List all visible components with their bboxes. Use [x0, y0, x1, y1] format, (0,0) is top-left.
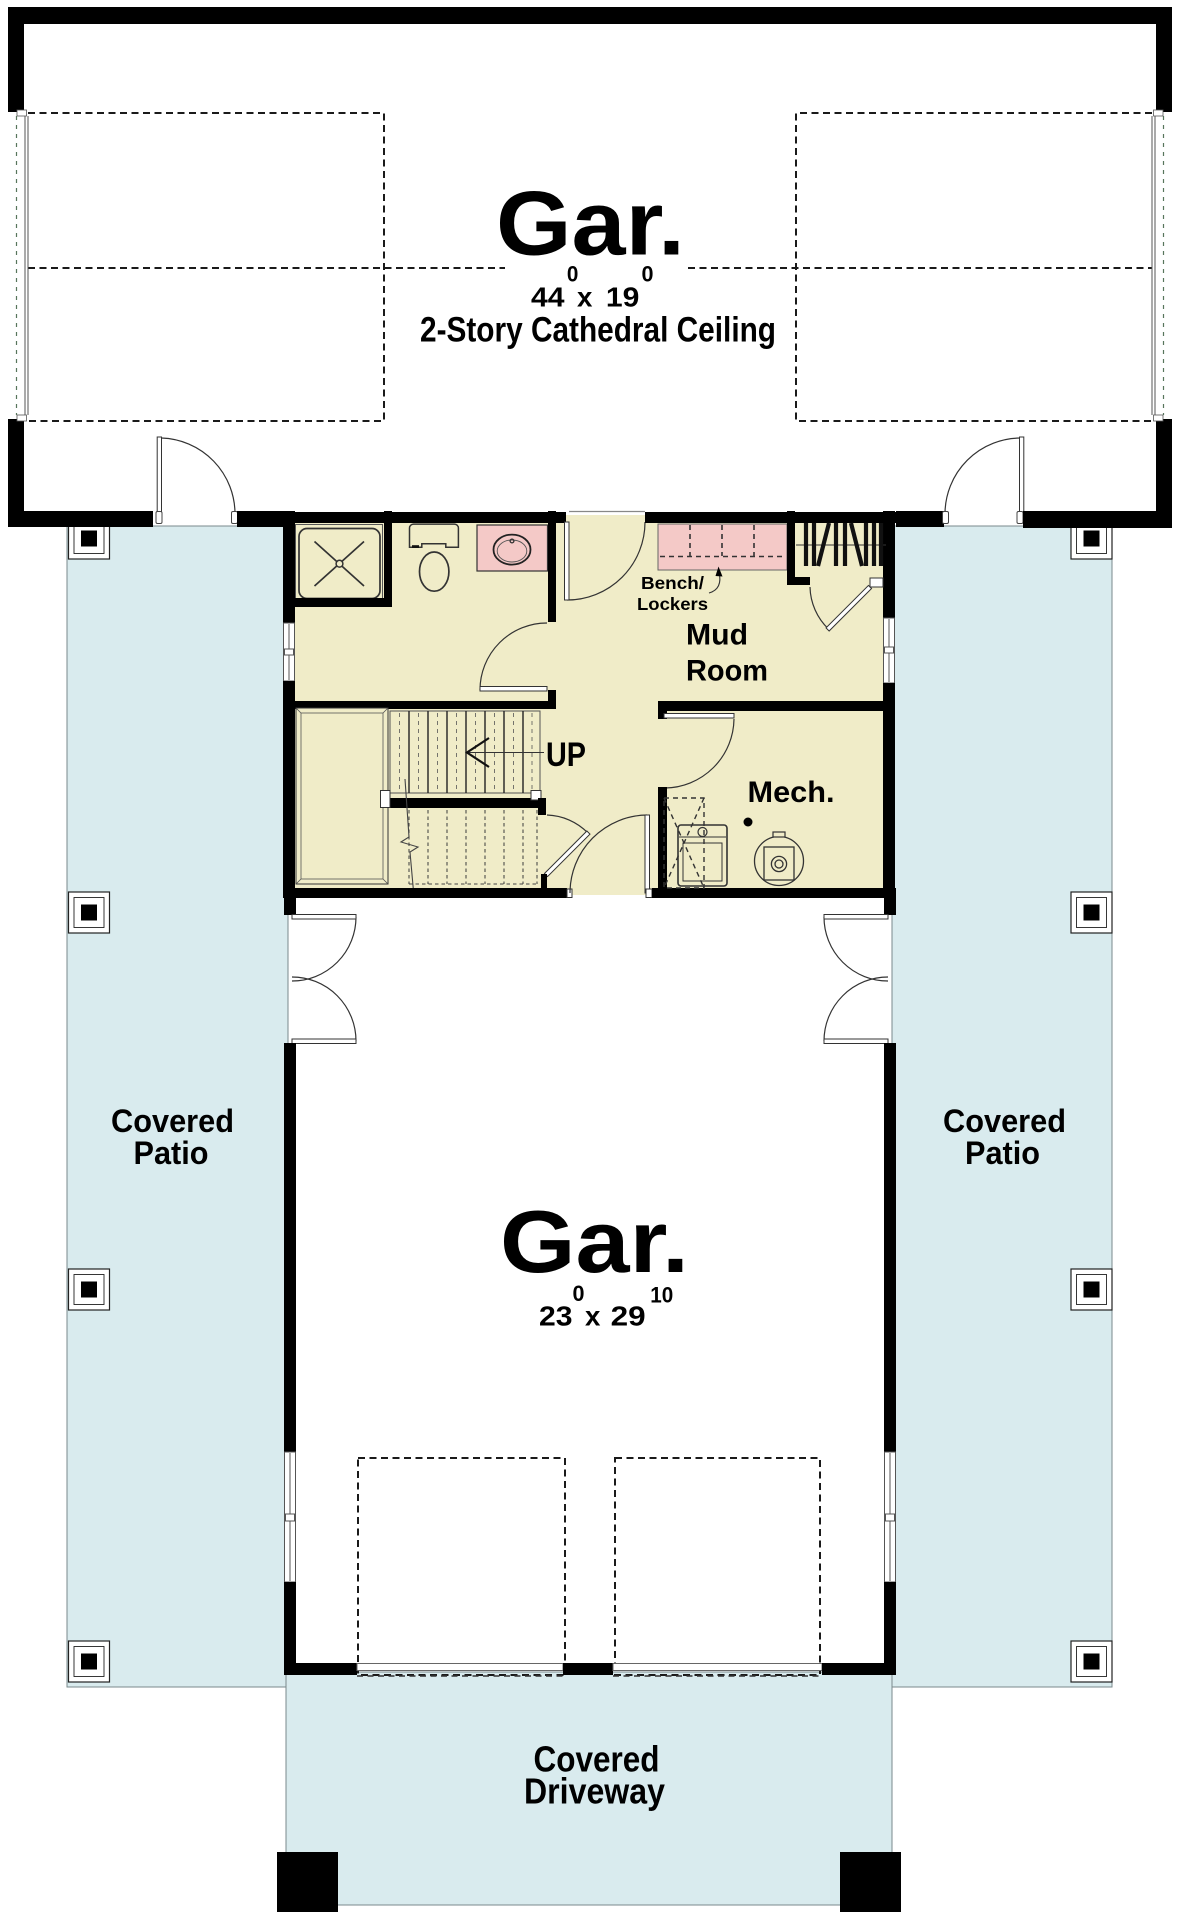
- svg-text:23: 23: [539, 1301, 573, 1332]
- svg-text:Lockers: Lockers: [637, 594, 708, 614]
- svg-text:29: 29: [611, 1301, 646, 1332]
- svg-text:Patio: Patio: [134, 1135, 209, 1171]
- svg-text:Bench/: Bench/: [641, 573, 704, 593]
- svg-text:Patio: Patio: [965, 1135, 1040, 1171]
- svg-text:44: 44: [531, 282, 565, 313]
- svg-text:0: 0: [573, 1281, 585, 1306]
- svg-text:x: x: [577, 282, 593, 313]
- svg-text:10: 10: [650, 1283, 673, 1308]
- svg-text:Mech.: Mech.: [748, 776, 835, 809]
- svg-text:Room: Room: [686, 654, 768, 687]
- svg-text:Driveway: Driveway: [524, 1770, 666, 1811]
- svg-text:2-Story Cathedral Ceiling: 2-Story Cathedral Ceiling: [420, 311, 776, 350]
- svg-text:Mud: Mud: [686, 618, 748, 651]
- svg-text:19: 19: [606, 282, 640, 313]
- svg-text:0: 0: [642, 262, 654, 287]
- svg-text:Covered: Covered: [943, 1103, 1066, 1139]
- svg-text:x: x: [585, 1301, 601, 1332]
- svg-text:Gar.: Gar.: [500, 1192, 689, 1291]
- svg-text:Gar.: Gar.: [496, 174, 685, 275]
- svg-text:Covered: Covered: [111, 1103, 234, 1139]
- svg-text:UP: UP: [546, 736, 586, 774]
